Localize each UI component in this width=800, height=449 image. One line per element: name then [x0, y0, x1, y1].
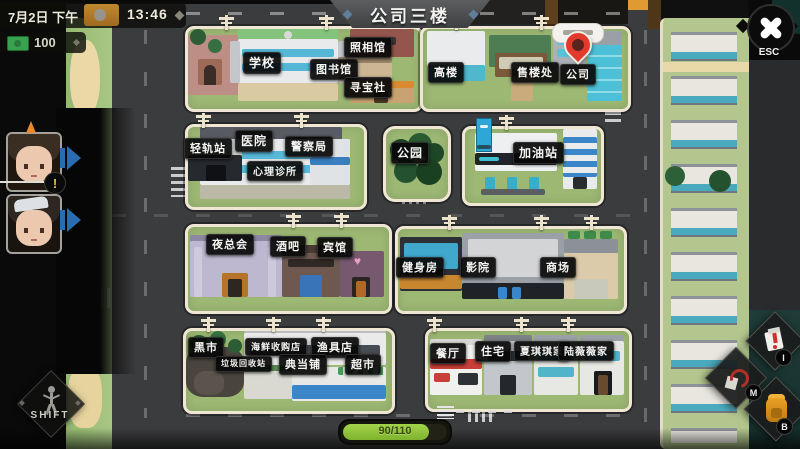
mouth — [31, 239, 37, 241]
hotkey-bag[interactable]: B — [776, 418, 793, 435]
money-bar: 100 — [0, 32, 86, 53]
map-label-restaurant[interactable]: 餐厅 — [430, 343, 466, 364]
map-label-gym[interactable]: 健身房 — [396, 257, 444, 278]
dash-deco — [456, 410, 514, 413]
crosswalk — [171, 167, 185, 197]
hotkey-item[interactable]: I — [775, 349, 792, 366]
door — [498, 287, 507, 299]
sign-glow — [479, 157, 499, 161]
portrait-2-arrow[interactable] — [60, 208, 82, 234]
map-label-clinic[interactable]: 心理诊所 — [247, 161, 303, 181]
map-label-sales-office[interactable]: 售楼处 — [511, 62, 559, 83]
door — [206, 165, 226, 181]
stamina-text: 90/110 — [340, 425, 450, 437]
windows — [458, 373, 478, 385]
lamp-pole — [272, 317, 275, 332]
path — [200, 185, 350, 199]
person-head — [48, 386, 55, 393]
money-icon-center — [14, 40, 21, 47]
skip-arrow-icon — [60, 210, 65, 230]
windows — [288, 259, 334, 267]
door — [512, 287, 521, 299]
map-label-hotel[interactable]: 宾馆 — [317, 237, 353, 258]
road-dashes — [112, 214, 640, 217]
map-label-police[interactable]: 警察局 — [285, 136, 333, 157]
lamp-pole — [292, 213, 295, 228]
lamp-pole — [540, 215, 543, 230]
bush — [709, 170, 731, 192]
shop-band — [292, 385, 386, 399]
windows — [563, 137, 597, 177]
map-label-residence[interactable]: 住宅 — [475, 341, 511, 362]
map-label-black-market[interactable]: 黑市 — [188, 337, 224, 358]
esc-hint: ESC — [747, 47, 791, 58]
awning — [600, 231, 612, 239]
money-icon — [7, 36, 29, 51]
eye — [24, 228, 28, 233]
map-label-recycle-station[interactable]: 垃圾回收站 — [215, 356, 272, 372]
date-text: 7月2日 下午 — [8, 7, 78, 26]
vending-base — [477, 145, 491, 149]
shift-hint: SHIFT — [24, 410, 76, 421]
skip-arrow-icon — [67, 146, 81, 170]
door-inner — [598, 375, 608, 395]
vending-machine — [476, 118, 492, 152]
lamp-pole — [505, 115, 508, 130]
map-label-treasure-club[interactable]: 寻宝社 — [344, 77, 392, 98]
flame-icon — [26, 121, 36, 133]
lamp-pole — [590, 215, 593, 230]
door-inner — [228, 279, 242, 297]
lamp-pole — [433, 317, 436, 332]
building-detail — [204, 65, 216, 85]
skip-arrow-icon — [60, 148, 65, 168]
lamp-pole — [448, 215, 451, 230]
awning — [584, 231, 596, 239]
lamp-pole — [202, 113, 205, 128]
map-label-bar[interactable]: 酒吧 — [270, 236, 306, 257]
map-label-hospital[interactable]: 医院 — [235, 130, 273, 152]
map-label-gas-station[interactable]: 加油站 — [513, 142, 564, 164]
location-banner: 公司三楼 — [330, 0, 490, 28]
location-title: 公司三楼 — [370, 2, 450, 27]
tree — [208, 39, 222, 53]
portrait-1-arrow[interactable] — [60, 146, 82, 172]
eye — [40, 164, 44, 169]
alert-mark: ! — [53, 176, 57, 191]
office-light — [628, 0, 650, 10]
game-screen: 学校 图书馆 照相馆 寻宝社 高楼 售楼处 公司 轻轨站 医院 警察局 心理诊所… — [0, 0, 800, 449]
lamp-pole — [567, 317, 570, 332]
map-label-rail-station[interactable]: 轻轨站 — [184, 138, 232, 159]
diamond-ornament — [73, 39, 80, 46]
mall-path — [574, 279, 608, 299]
lamp-pole — [207, 317, 210, 332]
alert-badge: ! — [44, 172, 66, 194]
map-label-school[interactable]: 学校 — [243, 52, 281, 74]
lamp-pole — [540, 15, 543, 30]
hotkey-map[interactable]: M — [745, 384, 762, 401]
connector-line — [0, 181, 44, 183]
map-label-park[interactable]: 公园 — [391, 142, 429, 164]
stamina-bar: 90/110 — [338, 419, 452, 445]
pillar — [194, 247, 202, 297]
block-park — [383, 126, 451, 202]
portrait-2[interactable] — [6, 194, 62, 254]
lamp-pole — [322, 317, 325, 332]
map-label-photo-studio[interactable]: 照相馆 — [344, 37, 392, 58]
map-label-mall[interactable]: 商场 — [540, 257, 576, 278]
tree — [190, 29, 206, 45]
skip-arrow-icon — [67, 208, 81, 232]
sun-icon — [94, 9, 106, 21]
daytime-icon — [84, 4, 119, 26]
recycle-body — [244, 371, 292, 399]
money-amount: 100 — [34, 35, 56, 50]
door — [500, 375, 516, 395]
backpack-pocket — [771, 408, 782, 418]
lamp-pole — [325, 15, 328, 30]
tree — [228, 339, 242, 353]
schoolyard — [238, 83, 338, 101]
awning — [568, 231, 580, 239]
windows — [538, 367, 574, 377]
bush — [665, 166, 685, 186]
exclamation-icon — [773, 345, 777, 349]
pin-center — [570, 37, 587, 54]
building-detail — [230, 41, 240, 83]
diamond-ornament — [175, 11, 185, 21]
police-band — [310, 157, 350, 165]
map-label-company[interactable]: 公司 — [560, 64, 596, 85]
pump-base — [481, 189, 545, 195]
map-label-luweiwei-home[interactable]: 陆薇薇家 — [558, 341, 614, 361]
door — [300, 275, 322, 297]
map-label-nightclub[interactable]: 夜总会 — [206, 234, 254, 255]
door-inner — [356, 281, 366, 297]
restaurant-sign — [434, 373, 450, 382]
road-dashes — [144, 30, 147, 418]
heart-icon — [354, 255, 361, 267]
clock — [284, 31, 292, 39]
map-label-highrise[interactable]: 高楼 — [428, 62, 464, 83]
door — [573, 177, 587, 189]
rocks — [194, 371, 224, 395]
map-label-supermarket[interactable]: 超市 — [345, 354, 381, 375]
lamp-pole — [520, 317, 523, 332]
lamp-pole — [340, 213, 343, 228]
lamp-pole — [225, 15, 228, 30]
close-button[interactable] — [747, 4, 795, 52]
lamp-pole — [300, 113, 303, 128]
mall-roof — [564, 239, 618, 253]
road-dashes — [644, 30, 647, 430]
datetime-bar: 7月2日 下午 13:46 — [0, 2, 186, 28]
right-wall — [748, 60, 800, 312]
mouth — [31, 175, 37, 177]
map-label-cinema[interactable]: 影院 — [460, 257, 496, 278]
eye — [24, 164, 28, 169]
vending-screen — [480, 125, 488, 128]
eye — [40, 228, 44, 233]
road-dashes — [186, 414, 626, 417]
blinds-deco — [437, 406, 454, 419]
time-text: 13:46 — [127, 6, 168, 22]
map-label-pawn-shop[interactable]: 典当铺 — [279, 354, 327, 375]
